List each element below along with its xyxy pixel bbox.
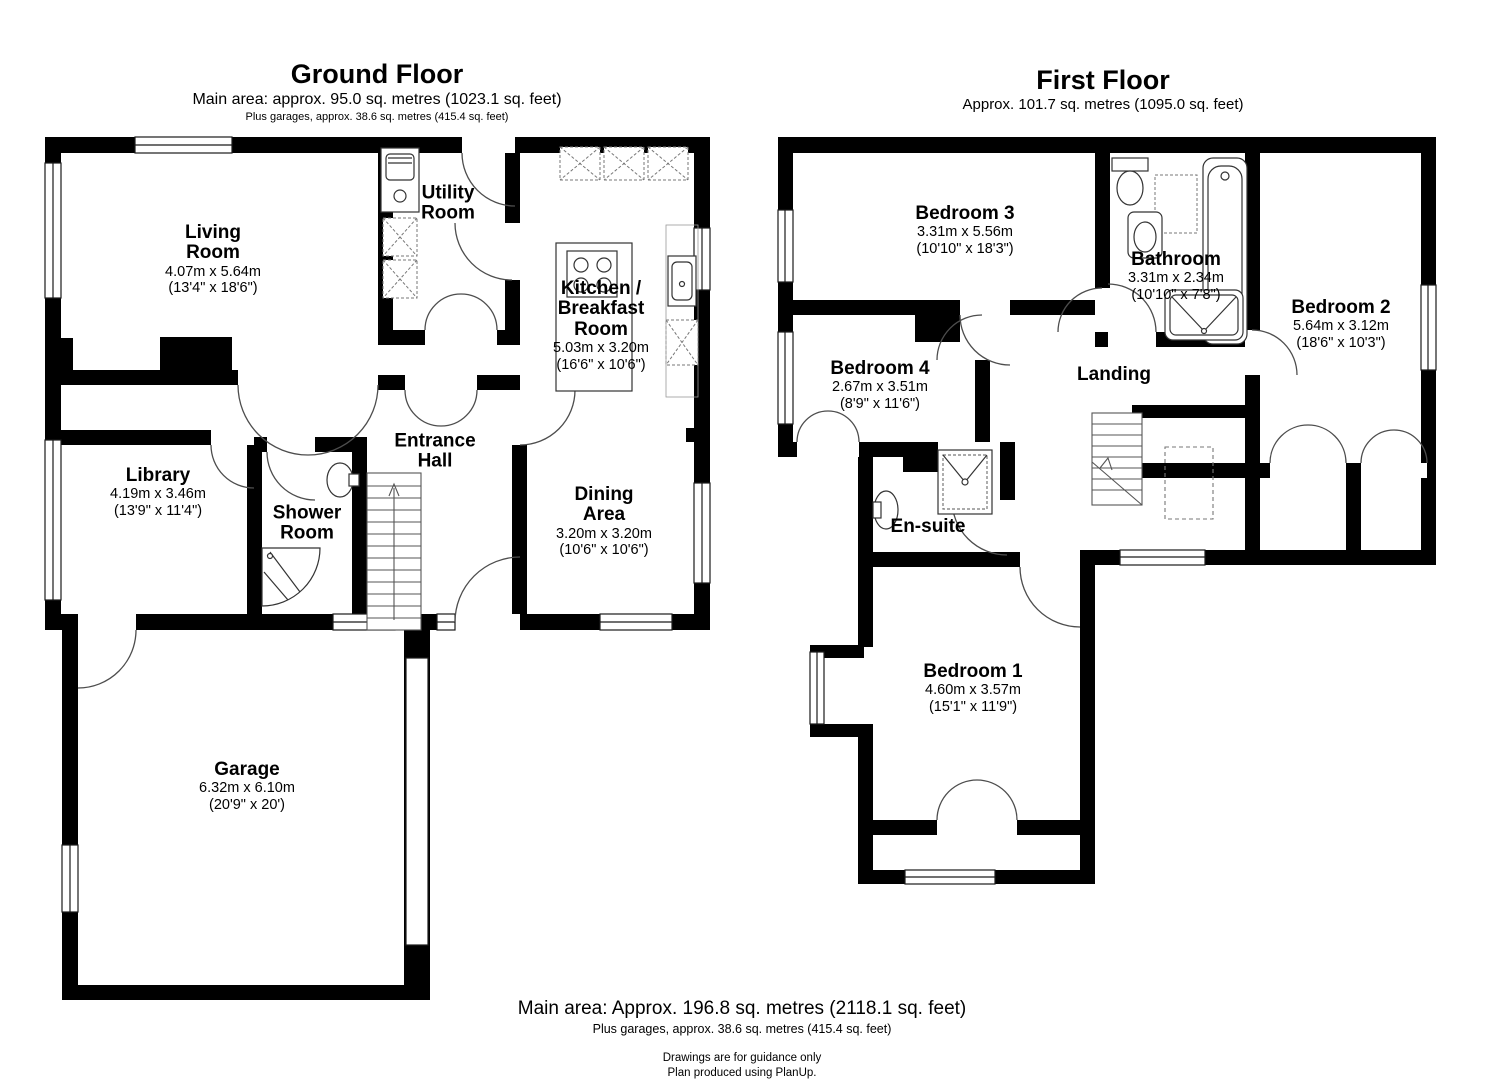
floorplan-page: Ground Floor Main area: approx. 95.0 sq.… [0,0,1485,1080]
room-label-kitchen-breakfast-room: Kitchen / Breakfast Room 5.03m x 3.20m (… [553,279,649,373]
window [1421,285,1436,370]
door-arc [520,390,575,445]
door-arc [405,390,441,426]
wardrobe-door-arc [828,411,859,442]
room-label-entrance-hall: Entrance Hall [394,432,475,473]
room-label-library: Library 4.19m x 3.46m (13'9" x 11'4") [110,466,206,520]
front-door-arc [455,557,520,622]
garage-side-door [406,658,428,945]
kitchen-sink-icon [666,225,698,397]
utility-sink-icon [381,148,419,212]
wardrobe-door-arc [797,411,828,442]
first-floor-area: Approx. 101.7 sq. metres (1095.0 sq. fee… [963,96,1244,115]
door-arc [1020,567,1080,627]
guidance-note: Drawings are for guidance only [518,1051,967,1066]
ground-floor-area: Main area: approx. 95.0 sq. metres (1023… [192,90,561,110]
ground-floor-plan [45,137,710,1000]
room-label-en-suite: En-suite [891,517,966,537]
back-door-arc [78,630,136,688]
window [135,137,232,153]
room-label-bathroom: Bathroom 3.31m x 2.34m (10'10" x 7'8") [1128,250,1224,304]
door-arc [425,294,461,330]
wardrobe-door-arc [1270,425,1308,463]
room-label-bedroom-2: Bedroom 2 5.64m x 3.12m (18'6" x 10'3") [1291,298,1390,352]
window [810,652,824,724]
ensuite-shower-icon [938,450,992,514]
chimney-breast [160,337,232,385]
shower-tray-icon [262,548,320,606]
window [600,614,672,630]
door-arc [455,223,512,280]
door-arc [441,390,477,426]
floorplan-drawing [0,0,1485,1080]
loft-hatch-outline [1165,447,1213,519]
first-floor-plan [778,137,1436,884]
total-main-area: Main area: Approx. 196.8 sq. metres (211… [518,998,967,1021]
door-arc [461,294,497,330]
room-label-dining-area: Dining Area 3.20m x 3.20m (10'6" x 10'6"… [556,485,652,559]
first-floor-title: First Floor [963,66,1244,96]
first-floor-header: First Floor Approx. 101.7 sq. metres (10… [963,66,1244,114]
door-arc [267,452,315,500]
room-label-bedroom-3: Bedroom 3 3.31m x 5.56m (10'10" x 18'3") [915,204,1014,258]
room-label-utility-room: Utility Room [421,184,475,225]
window [45,163,61,298]
footer: Main area: Approx. 196.8 sq. metres (211… [518,998,967,1080]
ground-floor-door-arcs [78,153,575,688]
ground-floor-title: Ground Floor [192,60,561,90]
room-label-shower-room: Shower Room [273,504,342,545]
room-label-landing: Landing [1077,365,1151,385]
room-label-garage: Garage 6.32m x 6.10m (20'9" x 20') [199,760,295,814]
window [694,483,710,583]
window [62,845,78,912]
room-label-living-room: Living Room 4.07m x 5.64m (13'4" x 18'6"… [165,223,261,297]
french-door-arc [937,780,977,820]
toilet-icon [1112,158,1148,205]
ground-floor-garage-area: Plus garages, approx. 38.6 sq. metres (4… [192,110,561,124]
window [778,332,793,424]
window [437,614,455,630]
produced-note: Plan produced using PlanUp. [518,1066,967,1080]
room-label-bedroom-4: Bedroom 4 2.67m x 3.51m (8'9" x 11'6") [830,359,929,413]
window [1120,550,1205,565]
wardrobe-door-arc [1308,425,1346,463]
wardrobe-door-arc [1361,430,1394,463]
window [778,210,793,282]
first-floor-staircase-icon [1092,413,1142,505]
window [905,870,995,884]
total-garage-area: Plus garages, approx. 38.6 sq. metres (4… [518,1021,967,1037]
window [45,440,61,600]
french-door-arc [977,780,1017,820]
staircase-icon [367,473,421,630]
ground-floor-header: Ground Floor Main area: approx. 95.0 sq.… [192,60,561,124]
room-label-bedroom-1: Bedroom 1 4.60m x 3.57m (15'1" x 11'9") [923,662,1022,716]
